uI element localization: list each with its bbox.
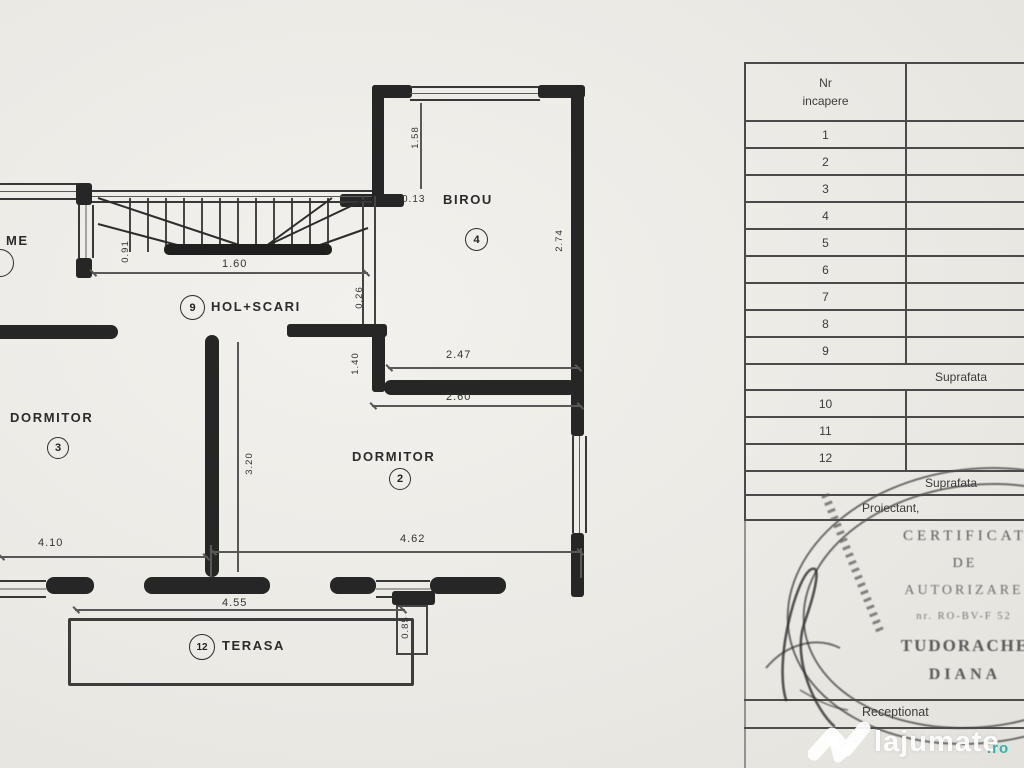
room-number-dormitor2: 2 (389, 468, 411, 490)
dim-line-247 (388, 367, 580, 369)
wall-birou-left (372, 85, 384, 207)
stamp-title-3: AUTORIZARE (864, 583, 1024, 599)
window-bottom-1 (0, 580, 46, 598)
table-header: Nr incapere Denumire (746, 64, 1024, 122)
wall-bottom-1 (46, 577, 94, 594)
table-row: 5buca (746, 230, 1024, 257)
table-row: 1living+ (746, 122, 1024, 149)
dim-274: 2.74 (554, 229, 565, 252)
table-row: 10tera (746, 391, 1024, 418)
room-table: Nr incapere Denumire 1living+ 2dorm 3dor… (744, 62, 1024, 521)
header-nr: Nr incapere (746, 64, 905, 120)
watermark: lajumate .ro (800, 710, 1024, 768)
dim-158: 1.58 (410, 126, 421, 149)
dim-013: 0.13 (402, 194, 425, 205)
room-number-hol: 9 (180, 295, 205, 320)
dim-140: 1.40 (350, 352, 361, 375)
table-row: 8ho (746, 311, 1024, 338)
wall-bottom-4 (430, 577, 506, 594)
watermark-brand: lajumate (874, 726, 1000, 759)
dim-160: 1.60 (222, 258, 247, 270)
dim-410: 4.10 (38, 537, 63, 549)
dim-085: 0.85 (400, 616, 411, 639)
table-row: 4bir (746, 203, 1024, 230)
table-row: 6ba (746, 257, 1024, 284)
wall-birou-bottom (384, 380, 576, 395)
table-row-suprafata-2: Suprafata (746, 472, 1024, 496)
stamp-name-1: TUDORACHE (860, 636, 1024, 656)
table-row: 7ba (746, 284, 1024, 311)
table-line-receptionat-top (744, 699, 1024, 701)
dim-455: 4.55 (222, 597, 247, 609)
watermark-tld: .ro (987, 740, 1009, 757)
wall-right-lower (571, 533, 584, 597)
floor-plan: 0.13 1.58 1.60 0.91 0.26 2.74 2.47 2.60 … (0, 0, 744, 768)
wall-middle-vertical (205, 335, 219, 577)
room-number-birou: 4 (465, 228, 488, 251)
room-label-birou: BIROU (443, 192, 493, 207)
stamp-serial: nr. RO-BV-F 52 (864, 611, 1024, 622)
wall-left-vert-topblock (76, 183, 92, 205)
wall-jog-vertical (372, 330, 385, 392)
table-row: 2dorm (746, 149, 1024, 176)
window-birou-top (410, 86, 540, 101)
table-row-suprafata: Suprafata (746, 365, 1024, 391)
lajumate-logo-icon (808, 716, 878, 766)
table-left-border-lower (744, 519, 746, 768)
dim-line-462 (212, 551, 582, 553)
dim-260: 2.60 (446, 391, 471, 403)
table-row: 12tera (746, 445, 1024, 472)
room-label-partial-left: ME (6, 233, 29, 248)
dim-247: 2.47 (446, 349, 471, 361)
wall-left-vert-bottomblock (76, 258, 92, 278)
stamp-title-1: CERTIFICAT (870, 528, 1024, 545)
dim-ext-1 (210, 545, 212, 577)
dim-320: 3.20 (244, 452, 255, 475)
wall-pillar-top (392, 591, 435, 605)
dim-091: 0.91 (120, 240, 131, 263)
table-row-proiectant: Proiectant, (746, 496, 1024, 519)
room-number-dormitor3: 3 (47, 437, 69, 459)
table-row: 3dorm (746, 176, 1024, 203)
wall-left-vert-mid (78, 205, 94, 258)
wall-bottom-3 (330, 577, 376, 594)
wall-left-mid (0, 325, 118, 339)
dim-ext-2 (580, 548, 582, 578)
stamp-name-2: DIANA (860, 666, 1024, 684)
dim-line-320 (237, 342, 239, 572)
room-number-terasa: 12 (189, 634, 215, 660)
dim-462: 4.62 (400, 533, 425, 545)
wall-bottom-2 (144, 577, 270, 594)
scanned-floorplan-document: { "plan": { "rooms": { "birou": {"label"… (0, 0, 1024, 768)
window-left-top (0, 183, 78, 200)
dim-line-260 (372, 405, 582, 407)
room-label-dormitor3: DORMITOR (10, 410, 93, 425)
dim-026: 0.26 (354, 286, 365, 309)
stairs (96, 194, 372, 266)
room-number-partial-left (0, 249, 14, 277)
header-denumire: Denumire (905, 64, 1024, 120)
room-label-dormitor2: DORMITOR (352, 449, 435, 464)
dim-line-stairs (92, 272, 368, 274)
room-label-hol: HOL+SCARI (211, 299, 301, 314)
dim-line-410 (0, 556, 208, 558)
window-right-wall (572, 436, 587, 533)
room-label-terasa: TERASA (222, 638, 285, 653)
dim-line-455 (75, 609, 405, 611)
table-row: 9hol+s (746, 338, 1024, 365)
table-row: 11tera (746, 418, 1024, 445)
stamp-title-2: DE (870, 556, 1024, 572)
